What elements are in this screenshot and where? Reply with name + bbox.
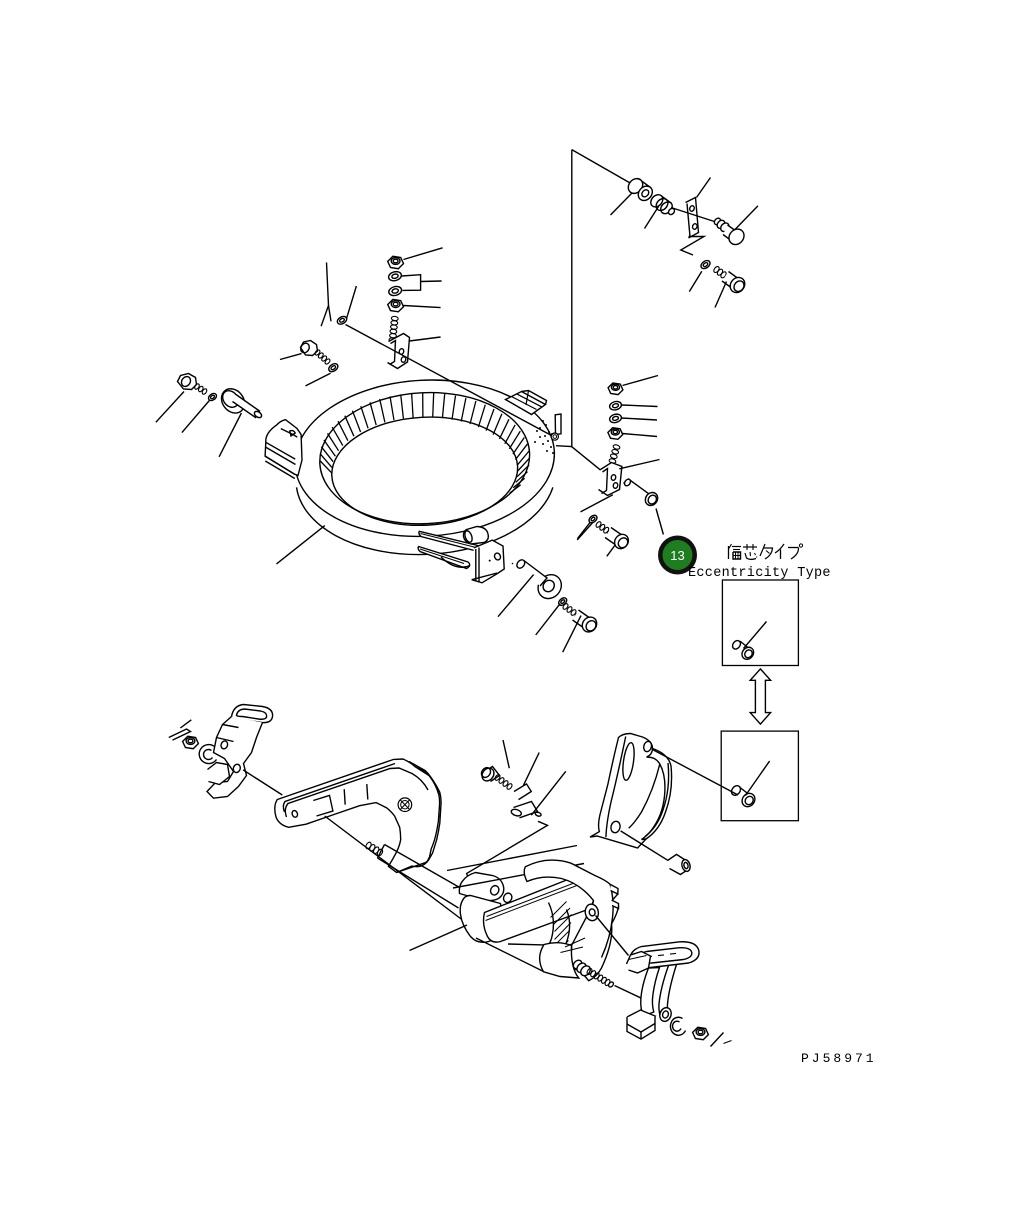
svg-text:Eccentricity Type: Eccentricity Type	[688, 566, 831, 581]
svg-text:13: 13	[670, 548, 684, 563]
svg-text:PJ58971: PJ58971	[801, 1051, 877, 1066]
